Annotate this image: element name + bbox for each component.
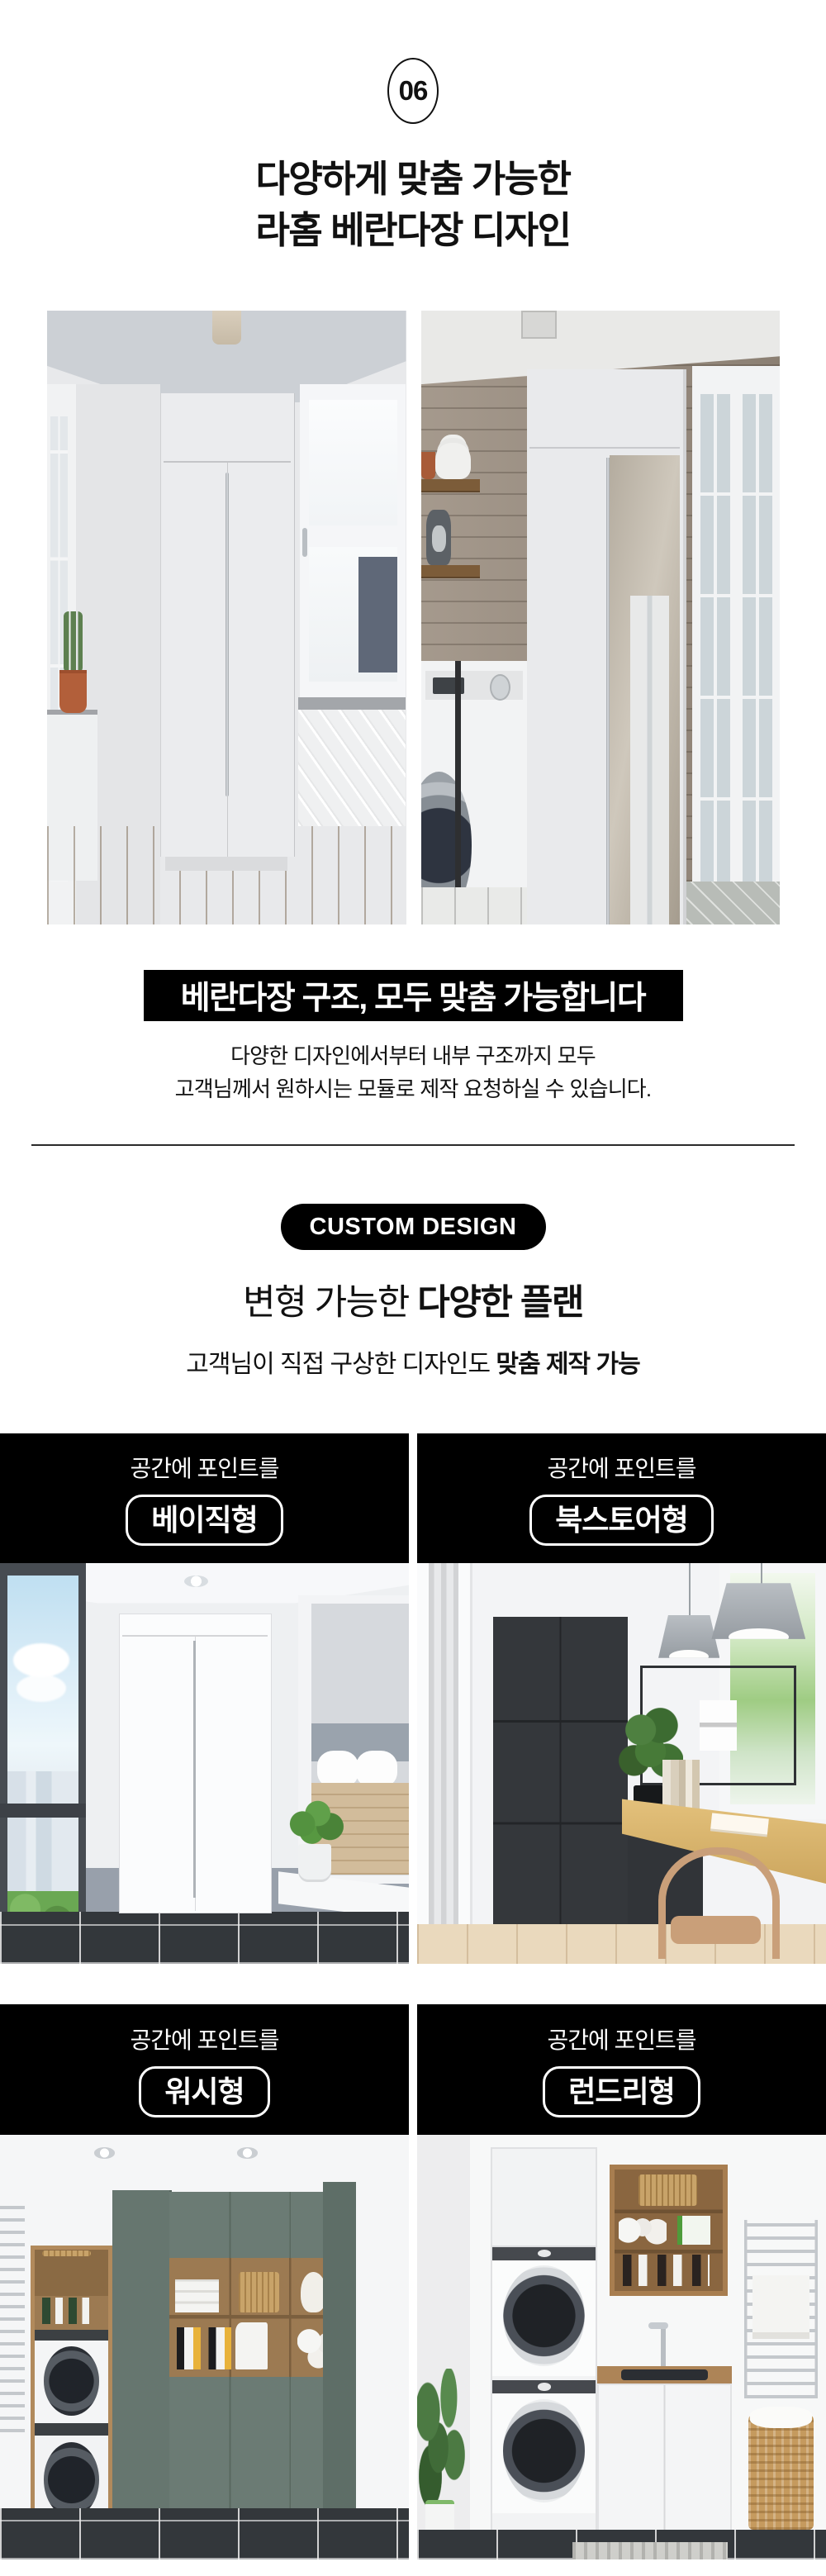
washer-door (44, 2442, 100, 2518)
sink-base-cabinet (597, 2384, 732, 2543)
card-eyebrow: 공간에 포인트를 (547, 1451, 695, 1484)
plant-pot (298, 1844, 331, 1880)
design-card-bookstore: 공간에 포인트를 북스토어형 (417, 1433, 826, 1964)
green-tall-cabinet (112, 2190, 172, 2530)
closet-plinth (165, 857, 287, 870)
ceiling-lamp (212, 311, 241, 345)
product-detail-page: 06 다양하게 맞춤 가능한 라홈 베란다장 디자인 (0, 58, 826, 2576)
heading-bold-part: 다양한 플랜 (417, 1283, 583, 1323)
window-sill (298, 697, 406, 710)
feature-description: 다양한 디자인에서부터 내부 구조까지 모두 고객님께서 원하시는 모듈로 제작… (0, 1039, 826, 1105)
card-header: 공간에 포인트를 워시형 (0, 2004, 409, 2135)
section-title-line1: 다양하게 맞춤 가능한 (0, 154, 826, 205)
wall-shelf-upper (421, 479, 481, 492)
washer-control-panel (35, 2423, 108, 2436)
chair-seat (671, 1916, 761, 1944)
pendant-cord (689, 1563, 691, 1619)
bottom-spacer (0, 2559, 826, 2576)
custom-design-subtitle: 고객님이 직접 구상한 디자인도 맞춤 제작 가능 (0, 1347, 826, 1382)
mirror-closet (527, 369, 686, 924)
veranda-photo-row (0, 311, 826, 924)
window-view-building (358, 557, 397, 673)
wicker-basket (638, 2174, 697, 2206)
card-type-label: 워시형 (139, 2066, 269, 2117)
custom-design-badge-text: CUSTOM DESIGN (310, 1214, 517, 1241)
veranda-photo-mirror-closet (421, 311, 781, 924)
french-door-glass-right (743, 394, 772, 902)
section-title-line2: 라홈 베란다장 디자인 (0, 205, 826, 256)
gray-rug (572, 2542, 728, 2559)
closet-top-rail (164, 461, 291, 463)
wood-counter (597, 2366, 732, 2384)
section-number: 06 (399, 75, 428, 107)
green-plant (417, 2369, 470, 2513)
wicker-hamper (748, 2415, 814, 2530)
dryer-control-panel (35, 2330, 108, 2341)
wall-shelf-lower (421, 565, 481, 577)
green-corner-cabinet (323, 2182, 356, 2530)
mirror-reflection (630, 596, 669, 924)
closet-handle (225, 473, 229, 797)
recessed-light (237, 2147, 258, 2158)
washer (492, 2380, 596, 2513)
french-door (692, 366, 780, 924)
veranda-photo-white-closet (47, 311, 406, 924)
detergent-bottles (177, 2327, 231, 2370)
terracotta-pot (59, 670, 87, 713)
design-card-laundry: 공간에 포인트를 런드리형 (417, 2004, 826, 2559)
feature-description-line1: 다양한 디자인에서부터 내부 구조까지 모두 (0, 1039, 826, 1072)
dark-tile-floor (0, 2508, 409, 2559)
cactus-plant (64, 611, 83, 673)
closet-handle (606, 458, 610, 924)
section-number-badge: 06 (387, 58, 439, 124)
soap-shelf (35, 2296, 108, 2329)
sink-basin (621, 2369, 708, 2380)
tiled-wainscot (298, 710, 406, 826)
feature-banner: 베란다장 구조, 모두 맞춤 가능합니다 (144, 970, 683, 1021)
sky-view (7, 1576, 78, 1952)
white-sliding-closet (119, 1614, 272, 1913)
card-eyebrow: 공간에 포인트를 (130, 2022, 278, 2056)
card-photo-bookstore (417, 1563, 826, 1964)
green-plant (284, 1795, 345, 1847)
heading-regular-part: 변형 가능한 (243, 1283, 417, 1323)
drying-rack-pole (455, 661, 461, 924)
custom-design-badge: CUSTOM DESIGN (281, 1204, 546, 1250)
custom-design-heading: 변형 가능한 다양한 플랜 (0, 1280, 826, 1326)
white-laundry-cabinet (491, 2147, 597, 2542)
soap-bottles (623, 2255, 710, 2286)
city-buildings (7, 1771, 78, 1899)
detergent-jug (235, 2322, 268, 2370)
veranda-closet (160, 393, 295, 857)
rolled-towels (619, 2216, 667, 2245)
faucet (661, 2326, 667, 2368)
wood-niche (35, 2250, 108, 2297)
towel-radiator (0, 2203, 25, 2432)
washing-machine (421, 661, 527, 924)
card-type-label: 북스토어형 (529, 1495, 714, 1546)
dryer-door (44, 2346, 100, 2416)
soap-bottles (42, 2298, 93, 2324)
detergent-box (677, 2216, 710, 2245)
faucet-spout (648, 2322, 669, 2329)
design-card-wash: 공간에 포인트를 워시형 (0, 2004, 409, 2559)
closet-top-rail (529, 447, 679, 449)
washer-control-panel (425, 671, 523, 700)
subtitle-regular-part: 고객님이 직접 구상한 디자인도 (186, 1351, 496, 1378)
wood-wall-shelf (610, 2165, 729, 2296)
door-frame (417, 1563, 472, 1964)
card-header: 공간에 포인트를 북스토어형 (417, 1433, 826, 1563)
washer-dryer-tower (31, 2246, 112, 2530)
feature-banner-text: 베란다장 구조, 모두 맞춤 가능합니다 (181, 972, 645, 1019)
card-eyebrow: 공간에 포인트를 (547, 2022, 695, 2056)
closet-handle (193, 1641, 196, 1898)
dryer (35, 2330, 108, 2426)
dryer (492, 2247, 596, 2376)
section-divider (31, 1144, 795, 1146)
books-row (662, 1760, 700, 1810)
card-photo-wash (0, 2135, 409, 2559)
charcoal-cabinet (493, 1617, 628, 1925)
clouds (13, 1643, 69, 1677)
card-header: 공간에 포인트를 베이직형 (0, 1433, 409, 1563)
french-door-glass-left (700, 394, 730, 902)
card-photo-laundry (417, 2135, 826, 2559)
terracotta-pot (421, 452, 435, 479)
pendant-lamp (658, 1615, 719, 1667)
card-photo-basic (0, 1563, 409, 1964)
window-handle (302, 528, 307, 556)
washer-knob (538, 2383, 551, 2391)
vintage-lantern (426, 510, 451, 565)
hamper-liner (750, 2407, 811, 2428)
card-type-label: 베이직형 (126, 1495, 282, 1546)
washer-door (503, 2399, 586, 2503)
card-eyebrow: 공간에 포인트를 (130, 1451, 278, 1484)
window-glass-upper (309, 400, 398, 525)
card-header: 공간에 포인트를 런드리형 (417, 2004, 826, 2135)
window-frame (300, 384, 406, 697)
ceiling-vent (521, 311, 557, 339)
recessed-light (94, 2147, 115, 2158)
design-card-basic: 공간에 포인트를 베이직형 (0, 1433, 409, 1964)
white-towel (752, 2275, 809, 2339)
mirror-door (610, 455, 680, 924)
subtitle-bold-part: 맞춤 제작 가능 (496, 1351, 639, 1378)
folded-towels (175, 2279, 219, 2312)
dark-tile-floor (0, 1912, 409, 1964)
window-mullion (0, 1804, 86, 1818)
stacked-bowls (435, 443, 471, 480)
design-type-grid: 공간에 포인트를 베이직형 (0, 1433, 826, 2559)
feature-description-line2: 고객님께서 원하시는 모듈로 제작 요청하실 수 있습니다. (0, 1072, 826, 1105)
left-window (0, 1563, 86, 1964)
card-type-label: 런드리형 (543, 2066, 700, 2117)
dryer-door (503, 2265, 586, 2366)
wicker-basket (42, 2250, 91, 2255)
curtain (429, 1563, 458, 1964)
wicker-basket (239, 2272, 278, 2312)
washer-knob (490, 674, 510, 701)
section-title: 다양하게 맞춤 가능한 라홈 베란다장 디자인 (0, 154, 826, 256)
